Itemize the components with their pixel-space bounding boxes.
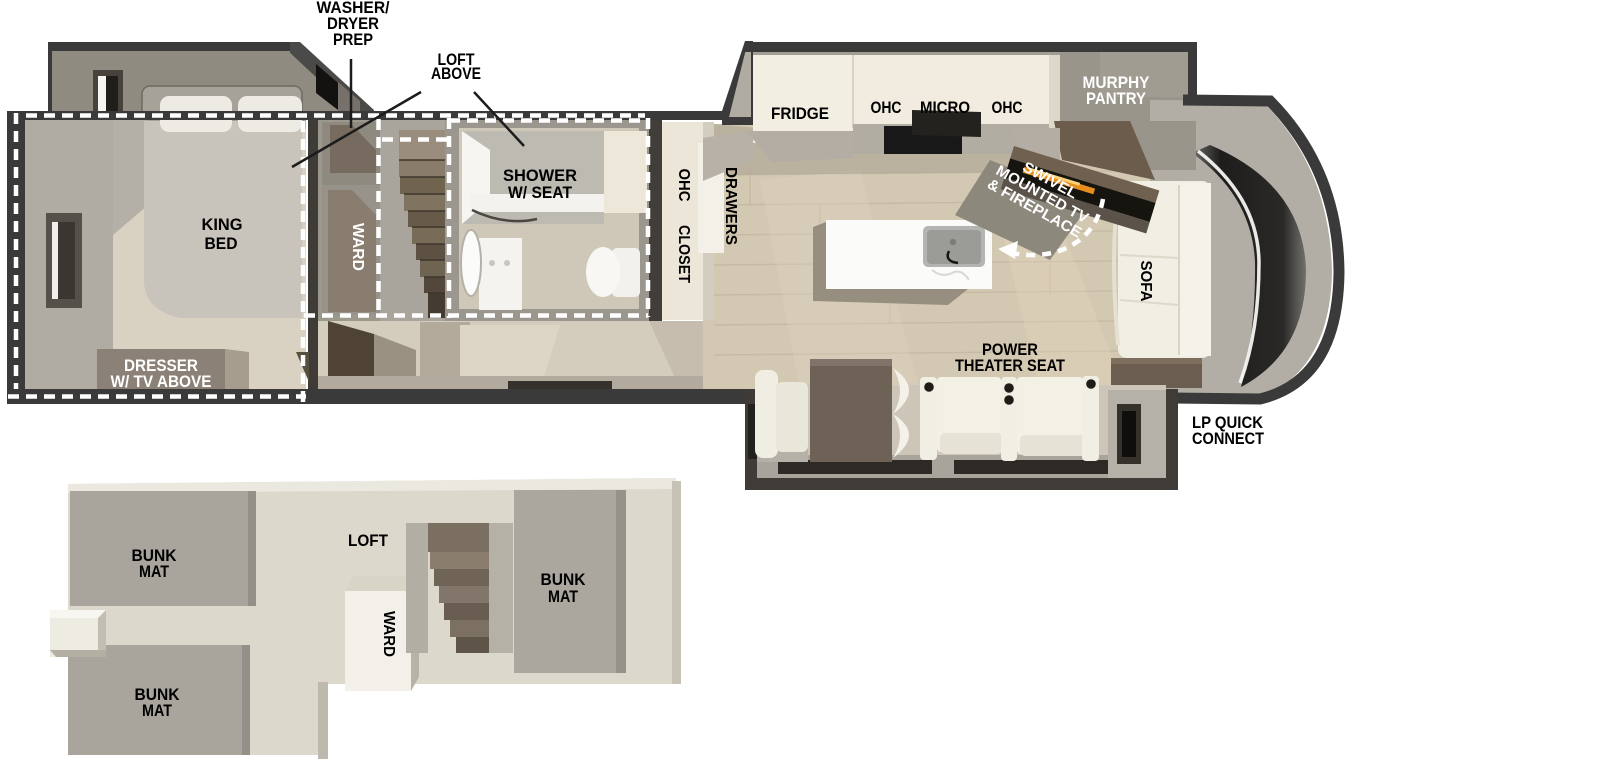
svg-text:W/ TV ABOVE: W/ TV ABOVE (111, 373, 212, 391)
svg-text:LOFT: LOFT (348, 531, 389, 550)
svg-text:PANTRY: PANTRY (1086, 90, 1146, 108)
svg-text:PREP: PREP (333, 30, 373, 49)
svg-text:MAT: MAT (548, 588, 578, 606)
svg-text:CLOSET: CLOSET (675, 225, 692, 283)
svg-text:BED: BED (205, 234, 238, 253)
svg-text:MAT: MAT (142, 702, 172, 720)
svg-text:WARD: WARD (380, 611, 397, 657)
svg-text:MAT: MAT (139, 563, 169, 581)
svg-text:KING: KING (202, 215, 243, 234)
svg-text:THEATER SEAT: THEATER SEAT (955, 356, 1066, 375)
svg-text:OHC: OHC (871, 98, 902, 117)
svg-text:DRAWERS: DRAWERS (722, 167, 739, 245)
svg-text:SOFA: SOFA (1137, 261, 1154, 302)
svg-text:MICRO: MICRO (920, 98, 970, 117)
svg-text:OHC: OHC (675, 169, 692, 202)
svg-text:WARD: WARD (349, 223, 366, 271)
svg-text:OHC: OHC (992, 98, 1023, 117)
svg-text:BUNK: BUNK (541, 571, 586, 589)
svg-text:ABOVE: ABOVE (431, 64, 481, 83)
svg-text:FRIDGE: FRIDGE (771, 104, 829, 123)
svg-text:CONNECT: CONNECT (1192, 430, 1264, 448)
svg-text:W/ SEAT: W/ SEAT (508, 183, 573, 202)
